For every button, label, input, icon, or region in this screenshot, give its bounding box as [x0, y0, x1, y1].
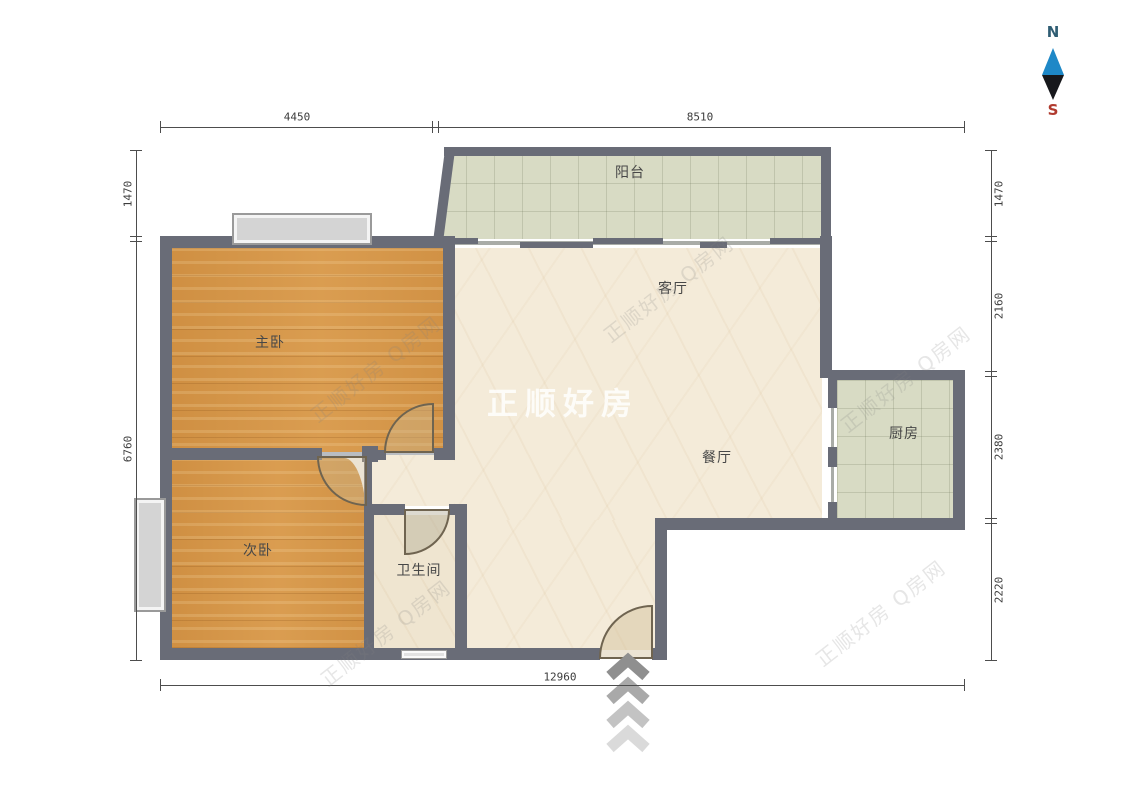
dim-tick — [964, 679, 965, 691]
dim-top-left: 4450 — [284, 111, 311, 124]
compass-needle-south-icon — [1042, 75, 1064, 100]
dim-tick — [160, 121, 161, 133]
dim-tick — [985, 150, 997, 151]
dim-tick — [438, 121, 439, 133]
dim-top-right: 8510 — [687, 111, 714, 124]
dim-right-1: 1470 — [993, 181, 1006, 208]
balcony-label: 阳台 — [615, 162, 645, 182]
second-bedroom-label: 次卧 — [243, 540, 273, 560]
bathroom-door — [405, 510, 449, 554]
compass-needle-north-icon — [1042, 48, 1064, 75]
dim-tick — [985, 660, 997, 661]
compass-north-label: N — [1047, 23, 1060, 41]
dining-label: 餐厅 — [702, 447, 732, 467]
entry-arrow-icon — [610, 684, 646, 700]
dim-tick — [160, 679, 161, 691]
dim-right-4: 2220 — [993, 577, 1006, 604]
dim-tick — [985, 376, 997, 377]
dim-right-3: 2380 — [993, 434, 1006, 461]
entry-door — [600, 606, 652, 658]
master-bedroom-label: 主卧 — [255, 332, 285, 352]
dim-tick — [130, 660, 142, 661]
kitchen-label: 厨房 — [889, 423, 919, 443]
living-label: 客厅 — [658, 278, 688, 298]
entry-arrow-icon — [610, 708, 646, 724]
entry-arrow-icon — [610, 732, 646, 748]
dim-tick — [985, 371, 997, 372]
dim-tick — [985, 523, 997, 524]
dim-tick — [130, 236, 142, 237]
floor-plan-canvas: 阳台 客厅 主卧 餐厅 厨房 次卧 卫生间 4450 8510 12960 14… — [0, 0, 1125, 803]
balcony-slanted-wall — [438, 150, 450, 242]
bathroom-label: 卫生间 — [397, 560, 442, 580]
dim-tick — [130, 150, 142, 151]
dim-tick — [985, 236, 997, 237]
compass-south-label: S — [1048, 101, 1059, 119]
dim-line-top — [160, 127, 965, 128]
dim-tick — [964, 121, 965, 133]
second-bedroom-door — [318, 457, 366, 505]
dim-left-bottom: 6760 — [122, 436, 135, 463]
dim-line-left — [136, 150, 137, 660]
dim-tick — [985, 518, 997, 519]
dim-left-top: 1470 — [122, 181, 135, 208]
dim-bottom: 12960 — [543, 671, 576, 684]
dim-right-2: 2160 — [993, 293, 1006, 320]
master-bedroom-door — [385, 404, 433, 452]
dim-tick — [985, 241, 997, 242]
dim-line-bottom — [160, 685, 965, 686]
dim-tick — [432, 121, 433, 133]
dim-tick — [130, 241, 142, 242]
entry-arrow-icon — [610, 660, 646, 676]
